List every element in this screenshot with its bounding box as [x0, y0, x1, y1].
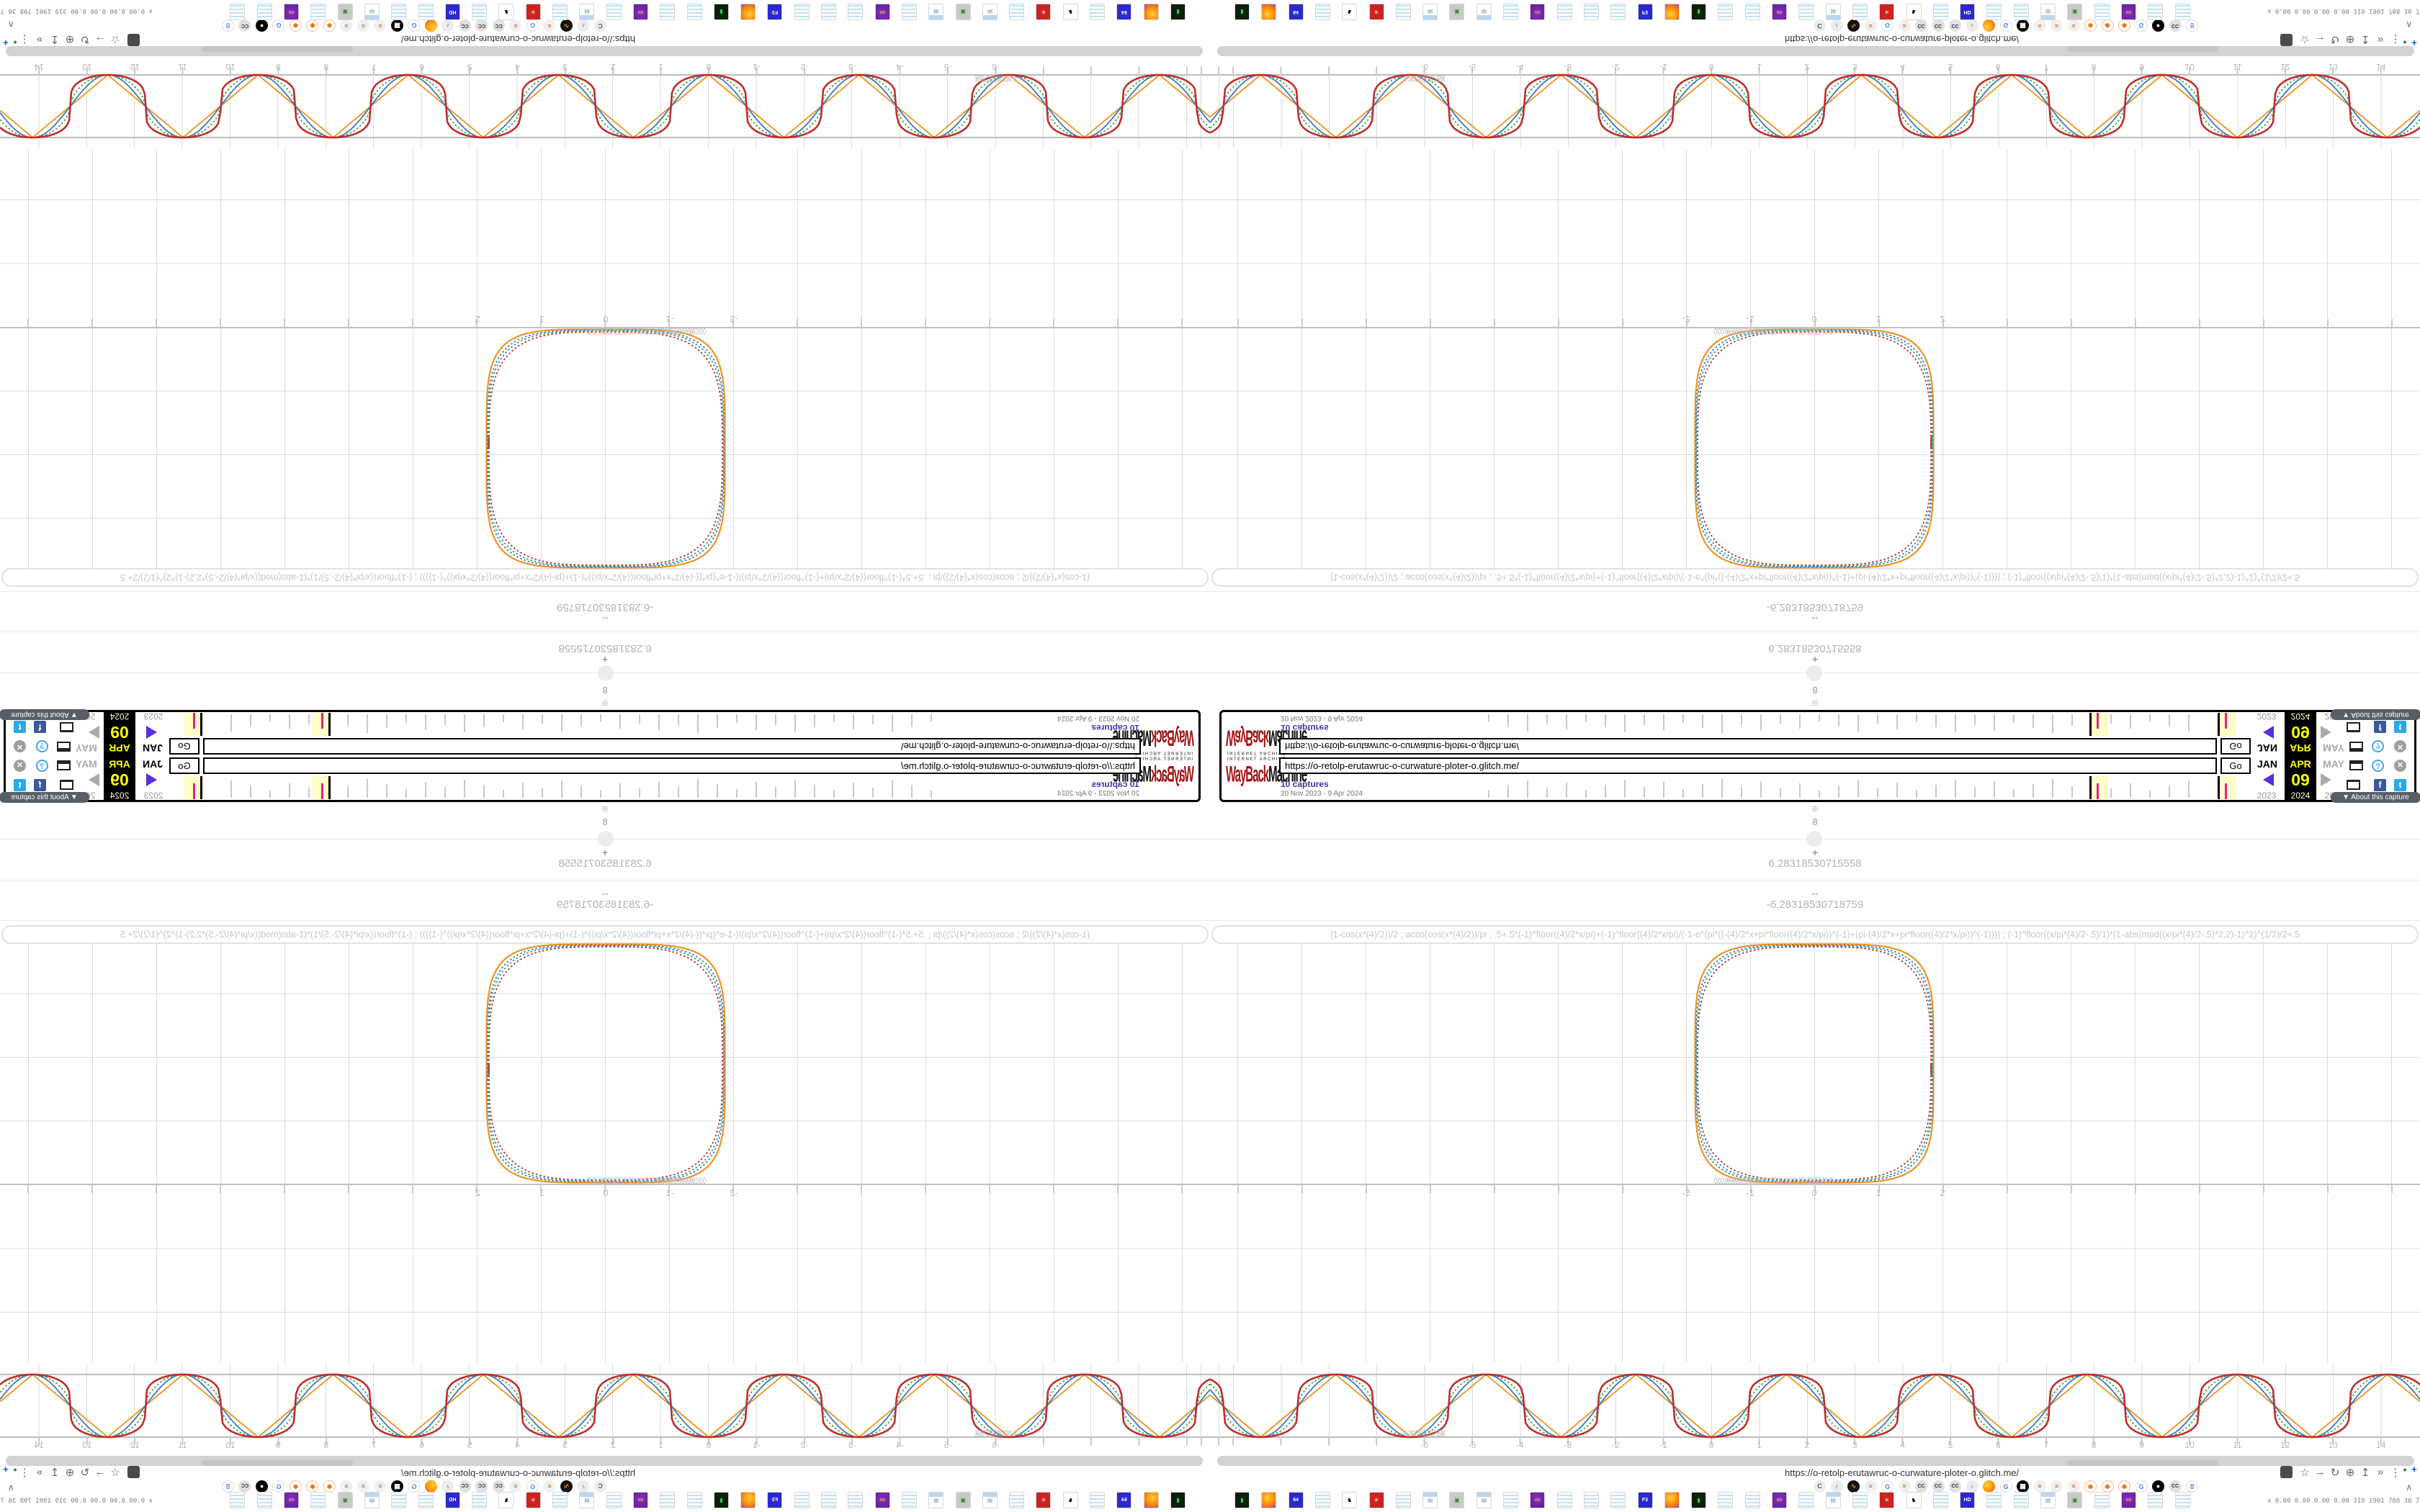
- capture-tick[interactable]: [581, 786, 582, 798]
- desktop-firefox-icon[interactable]: [1261, 4, 1276, 20]
- twitter-icon[interactable]: t: [14, 721, 26, 733]
- extension-asterisk-icon[interactable]: ✱: [290, 1480, 302, 1493]
- capture-tick[interactable]: [736, 789, 738, 798]
- capture-tick[interactable]: [2033, 784, 2034, 798]
- address-bar-url[interactable]: https://o-retolp-erutawruc-o-curwature-p…: [401, 1467, 635, 1478]
- close-icon[interactable]: ✕: [14, 740, 26, 752]
- capture-tick[interactable]: [483, 714, 485, 727]
- desktop-owl-icon[interactable]: oo: [2121, 4, 2136, 20]
- prev-capture-arrow-icon[interactable]: [146, 773, 157, 786]
- desktop-note-icon[interactable]: [1009, 1492, 1024, 1508]
- extension-cc-icon[interactable]: CC: [1932, 19, 1945, 32]
- capture-tick[interactable]: [853, 714, 854, 729]
- desktop-atom-icon[interactable]: ✳: [1036, 4, 1052, 20]
- capture-tick[interactable]: [1546, 788, 1548, 798]
- capture-tick[interactable]: [639, 788, 640, 798]
- desktop-note-icon[interactable]: [2094, 4, 2110, 20]
- wave-plot[interactable]: [0, 1369, 1210, 1441]
- desktop-monitor-icon[interactable]: ▣: [2067, 4, 2082, 20]
- status-dot-blue[interactable]: ✚: [0, 1466, 13, 1474]
- desktop-note-icon[interactable]: [902, 1492, 917, 1508]
- desktop-note-icon[interactable]: [552, 1492, 568, 1508]
- capture-tick[interactable]: [1721, 714, 1723, 733]
- desktop-calc-icon[interactable]: ▤: [1422, 1492, 1438, 1508]
- about-this-capture-button[interactable]: ▼ About this capture: [2331, 709, 2420, 720]
- collapse-caret-icon[interactable]: ∧: [2406, 19, 2413, 30]
- desktop-note-icon[interactable]: [472, 4, 487, 20]
- extension-cc-icon[interactable]: CC: [459, 1480, 471, 1493]
- prev-month-label[interactable]: JAN: [137, 742, 169, 754]
- desktop-note-icon[interactable]: [1933, 4, 1948, 20]
- desktop-firefox-icon[interactable]: [740, 4, 756, 20]
- capture-tick[interactable]: [444, 787, 446, 798]
- capture-tick[interactable]: [1507, 786, 1509, 798]
- desktop-note-icon[interactable]: [310, 1492, 326, 1508]
- next-capture-arrow-icon[interactable]: [2321, 726, 2331, 739]
- extension-asterisk-icon[interactable]: ✱: [2118, 1480, 2130, 1493]
- desktop-owl-icon[interactable]: oo: [2121, 1492, 2136, 1508]
- extension-google-icon[interactable]: G: [1881, 19, 1894, 32]
- desktop-calc-icon[interactable]: ▤: [2040, 4, 2056, 20]
- capture-tick[interactable]: [289, 714, 290, 729]
- desktop-atom-icon[interactable]: ✳: [526, 4, 541, 20]
- desktop-floppy-icon[interactable]: 64: [1289, 4, 1304, 20]
- desktop-cat-icon[interactable]: ♞: [1063, 1492, 1078, 1508]
- reload-icon[interactable]: ↻: [78, 1466, 92, 1479]
- desktop-note-icon[interactable]: [1745, 1492, 1760, 1508]
- desktop-calc-icon[interactable]: ▤: [2040, 1492, 2056, 1508]
- capture-tick[interactable]: [1780, 788, 1781, 798]
- help-icon[interactable]: ?: [2372, 760, 2384, 772]
- capture-sparkline[interactable]: [200, 776, 932, 799]
- extension-asterisk-icon[interactable]: ✱: [290, 19, 302, 32]
- desktop-cat-icon[interactable]: ♞: [1342, 4, 1357, 20]
- desktop-terminal-icon[interactable]: ▮: [714, 1492, 729, 1508]
- desktop-floppy-icon[interactable]: 64: [1116, 1492, 1131, 1508]
- desktop-monitor-icon[interactable]: ▣: [1449, 4, 1464, 20]
- capture-tick[interactable]: [1682, 714, 1684, 723]
- capture-tick[interactable]: [892, 780, 893, 798]
- desktop-cat-icon[interactable]: ♞: [1906, 1492, 1922, 1508]
- capture-marker[interactable]: [2097, 783, 2099, 799]
- capture-tick[interactable]: [1780, 714, 1781, 724]
- extension-cc-icon[interactable]: CC: [459, 19, 471, 32]
- extension-dots-blue-icon[interactable]: ⠿: [2186, 1480, 2198, 1493]
- desktop-cat-icon[interactable]: ♞: [499, 1492, 514, 1508]
- capture-tick[interactable]: [386, 714, 387, 728]
- screenshot-icon[interactable]: [60, 780, 73, 790]
- status-dot-blue[interactable]: ✚: [0, 38, 13, 46]
- extension-stack-icon[interactable]: ≡: [1899, 19, 1911, 32]
- forward-arrow-icon[interactable]: →: [2313, 34, 2327, 46]
- extension-dots-blue-icon[interactable]: ⠿: [2186, 19, 2198, 32]
- desktop-atom-icon[interactable]: ✳: [1879, 1492, 1894, 1508]
- extension-copyright-icon[interactable]: C: [1814, 1480, 1826, 1493]
- extension-cat-black-icon[interactable]: ●: [2152, 1480, 2164, 1493]
- chevrons-icon[interactable]: »: [32, 34, 47, 46]
- desktop-note-icon[interactable]: [1718, 4, 1733, 20]
- capture-sparkline[interactable]: [200, 713, 932, 736]
- capture-tick[interactable]: [872, 714, 874, 724]
- stats-caret-icon[interactable]: ∧: [145, 7, 153, 14]
- desktop-note-icon[interactable]: [2014, 4, 2029, 20]
- wayback-url-input[interactable]: https://o-retolp-erutawruc-o-curwature-p…: [203, 757, 1141, 774]
- lobes-value[interactable]: 8: [0, 685, 1210, 696]
- desktop-note-icon[interactable]: [821, 4, 836, 20]
- prev-capture-arrow-icon[interactable]: [146, 726, 157, 739]
- extension-wave-black-icon[interactable]: ∿: [560, 19, 573, 32]
- desktop-atom-icon[interactable]: ✳: [1369, 1492, 1384, 1508]
- desktop-terminal-icon[interactable]: ▮: [714, 4, 729, 20]
- bookmark-star-icon[interactable]: ☆: [2298, 1466, 2312, 1479]
- move-icon[interactable]: +: [0, 654, 1210, 665]
- extension-asterisk-icon[interactable]: ✱: [2102, 19, 2114, 32]
- extension-google-icon[interactable]: G: [1881, 1480, 1894, 1493]
- extension-stack-icon[interactable]: ≡: [2034, 1480, 2046, 1493]
- extension-cat-black-icon[interactable]: ●: [2152, 19, 2164, 32]
- capture-tick[interactable]: [756, 714, 757, 730]
- capture-tick[interactable]: [1819, 714, 1820, 721]
- capture-tick[interactable]: [1546, 714, 1548, 724]
- capture-tick[interactable]: [1488, 714, 1489, 721]
- desktop-note-icon[interactable]: [257, 4, 272, 20]
- capture-tick[interactable]: [1741, 714, 1742, 726]
- capture-tick[interactable]: [2071, 786, 2073, 798]
- desktop-note-icon[interactable]: [310, 4, 326, 20]
- extension-stack-icon[interactable]: ≡: [341, 1480, 353, 1493]
- desktop-calc-icon[interactable]: ▤: [579, 4, 594, 20]
- desktop-note-icon[interactable]: [1503, 1492, 1518, 1508]
- capture-tick[interactable]: [542, 714, 543, 724]
- capture-tick[interactable]: [1877, 714, 1878, 724]
- extension-dots-blue-icon[interactable]: ⠿: [222, 19, 234, 32]
- desktop-note-icon[interactable]: [1610, 4, 1626, 20]
- capture-tick[interactable]: [289, 783, 290, 798]
- desktop-atom-icon[interactable]: ✳: [1369, 4, 1384, 20]
- prev-capture-arrow-icon[interactable]: [2263, 726, 2274, 739]
- capture-tick[interactable]: [1624, 780, 1626, 798]
- desktop-owl-icon[interactable]: oo: [1530, 1492, 1545, 1508]
- desktop-note-icon[interactable]: [2175, 4, 2190, 20]
- extension-cat-black-icon[interactable]: ●: [256, 19, 268, 32]
- capture-tick[interactable]: [386, 784, 387, 798]
- capture-tick[interactable]: [2110, 788, 2112, 798]
- desktop-note-icon[interactable]: [1396, 4, 1411, 20]
- capture-tick[interactable]: [2149, 791, 2151, 798]
- extension-stack-icon[interactable]: ≡: [1865, 1480, 1877, 1493]
- desktop-cat-icon[interactable]: ♞: [1063, 4, 1078, 20]
- desktop-note-icon[interactable]: [606, 4, 622, 20]
- capture-tick[interactable]: [833, 790, 835, 798]
- capture-tick[interactable]: [1663, 782, 1664, 798]
- desktop-owl-icon[interactable]: oo: [284, 1492, 299, 1508]
- capture-tick[interactable]: [464, 780, 465, 798]
- h-resize-icon[interactable]: ↔: [0, 887, 1210, 898]
- capture-tick[interactable]: [1974, 714, 1976, 725]
- close-icon[interactable]: ✕: [2394, 740, 2406, 752]
- rounded-square-plot[interactable]: [476, 930, 735, 1198]
- capture-tick[interactable]: [1644, 714, 1645, 725]
- wayback-url-input[interactable]: https://o-retolp-erutawruc-o-curwature-p…: [1279, 757, 2217, 774]
- capture-tick[interactable]: [892, 714, 893, 732]
- desktop-note-icon[interactable]: [1798, 1492, 1814, 1508]
- forward-arrow-icon[interactable]: →: [93, 34, 107, 46]
- extension-google-icon[interactable]: G: [2000, 1480, 2012, 1493]
- capture-tick[interactable]: [658, 781, 660, 798]
- capture-tick[interactable]: [736, 714, 738, 723]
- extension-asterisk-icon[interactable]: ✱: [307, 19, 319, 32]
- extension-copyright-icon[interactable]: C: [594, 19, 606, 32]
- extension-stack-icon[interactable]: ≡: [341, 19, 353, 32]
- capture-tick[interactable]: [775, 714, 776, 725]
- extension-copyright-icon[interactable]: C: [594, 1480, 606, 1493]
- desktop-firefox-icon[interactable]: [1664, 1492, 1680, 1508]
- desktop-calc-icon[interactable]: ▤: [928, 1492, 944, 1508]
- capture-tick[interactable]: [1916, 790, 1917, 798]
- desktop-note-icon[interactable]: [1557, 4, 1572, 20]
- extension-asterisk-icon[interactable]: ✱: [323, 19, 336, 32]
- desktop-firefox-icon[interactable]: [1664, 4, 1680, 20]
- extension-google-icon[interactable]: G: [2136, 1480, 2148, 1493]
- capture-tick[interactable]: [1838, 714, 1839, 726]
- capture-marker[interactable]: [2225, 783, 2227, 799]
- capture-tick[interactable]: [1507, 714, 1509, 726]
- translate-icon[interactable]: [127, 1466, 140, 1478]
- extension-stack-icon[interactable]: ≡: [1899, 1480, 1911, 1493]
- desktop-owl-icon[interactable]: oo: [1772, 1492, 1787, 1508]
- rounded-square-plot[interactable]: [476, 314, 735, 582]
- capture-marker[interactable]: [321, 783, 323, 799]
- extension-stack-icon[interactable]: ≡: [1865, 19, 1877, 32]
- x-max-value[interactable]: 6.28318530715558: [1210, 858, 2420, 870]
- capture-tick[interactable]: [717, 784, 718, 798]
- capture-tick[interactable]: [308, 714, 310, 724]
- capture-tick[interactable]: [2188, 714, 2190, 732]
- wave-plot[interactable]: [1210, 1369, 2420, 1441]
- capture-tick[interactable]: [1877, 788, 1878, 798]
- capture-tick[interactable]: [619, 714, 621, 729]
- status-dot-blue[interactable]: ✚: [2407, 1466, 2420, 1474]
- extension-google-icon[interactable]: G: [2000, 19, 2012, 32]
- desktop-note-icon[interactable]: [418, 1492, 434, 1508]
- forward-arrow-icon[interactable]: →: [2313, 1466, 2327, 1478]
- desktop-monitor-icon[interactable]: ▣: [956, 4, 971, 20]
- stats-caret-icon[interactable]: ∧: [2267, 1498, 2275, 1505]
- capture-tick[interactable]: [1935, 785, 1937, 798]
- capture-tick[interactable]: [464, 714, 465, 732]
- capture-tick[interactable]: [1935, 714, 1937, 727]
- extension-speaker-icon[interactable]: ♪: [1831, 1480, 1843, 1493]
- move-icon[interactable]: +: [1210, 847, 2420, 858]
- capture-tick[interactable]: [697, 714, 699, 733]
- captures-link[interactable]: 10 captures: [1281, 779, 1329, 789]
- capture-marker[interactable]: [2097, 713, 2099, 729]
- extension-speaker-icon[interactable]: ♪: [1966, 1480, 1978, 1493]
- capture-tick[interactable]: [2169, 714, 2170, 726]
- collapse-caret-icon[interactable]: ∧: [7, 1482, 14, 1493]
- extension-firefox-icon[interactable]: [425, 1480, 437, 1493]
- desktop-note-icon[interactable]: [1986, 4, 2002, 20]
- capture-tick[interactable]: [619, 783, 621, 798]
- extension-copyright-icon[interactable]: C: [1814, 19, 1826, 32]
- capture-tick[interactable]: [1663, 714, 1664, 730]
- desktop-note-icon[interactable]: [848, 4, 863, 20]
- desktop-note-icon[interactable]: [1933, 1492, 1948, 1508]
- desktop-cat-icon[interactable]: ♞: [1906, 4, 1922, 20]
- extension-speaker-icon[interactable]: ♪: [578, 19, 590, 32]
- twitter-icon[interactable]: t: [2394, 721, 2406, 733]
- capture-tick[interactable]: [814, 714, 815, 727]
- desktop-note-icon[interactable]: [660, 1492, 675, 1508]
- desktop-note-icon[interactable]: [1315, 4, 1330, 20]
- extension-cc-icon[interactable]: CC: [493, 1480, 505, 1493]
- gear-icon[interactable]: ◎: [0, 699, 1210, 707]
- help-icon[interactable]: ?: [36, 760, 48, 772]
- capture-tick[interactable]: [1994, 782, 1995, 798]
- capture-tick[interactable]: [308, 788, 310, 798]
- desktop-calc-icon[interactable]: ▤: [982, 1492, 998, 1508]
- capture-tick[interactable]: [1916, 714, 1917, 722]
- capture-tick[interactable]: [522, 714, 524, 729]
- desktop-owl-icon[interactable]: oo: [633, 4, 648, 20]
- desktop-monitor-icon[interactable]: ▣: [956, 1492, 971, 1508]
- capture-tick[interactable]: [581, 714, 582, 726]
- capture-tick[interactable]: [425, 714, 426, 730]
- stats-caret-icon[interactable]: ∧: [145, 1498, 153, 1505]
- extension-google-icon[interactable]: G: [408, 19, 421, 32]
- capture-tick[interactable]: [269, 791, 271, 798]
- desktop-terminal-icon[interactable]: ▮: [1234, 1492, 1250, 1508]
- lobes-value[interactable]: 8: [1210, 685, 2420, 696]
- desktop-calc-icon[interactable]: ▤: [982, 4, 998, 20]
- desktop-note-icon[interactable]: [1090, 1492, 1105, 1508]
- desktop-note-icon[interactable]: [257, 1492, 272, 1508]
- capture-tick[interactable]: [503, 714, 504, 722]
- capture-tick[interactable]: [2110, 714, 2112, 724]
- desktop-monitor-icon[interactable]: ▣: [338, 1492, 353, 1508]
- window-frames-icon[interactable]: [2349, 760, 2363, 770]
- wayback-url-input[interactable]: https://o-retolp-erutawruc-o-curwature-p…: [203, 738, 1141, 755]
- desktop-note-icon[interactable]: [418, 4, 434, 20]
- extension-stack-icon[interactable]: ≡: [510, 1480, 522, 1493]
- chevrons-icon[interactable]: »: [2373, 1466, 2388, 1478]
- capture-tick[interactable]: [931, 714, 932, 721]
- extension-grid-black-icon[interactable]: ▦: [2017, 19, 2029, 32]
- capture-tick[interactable]: [814, 785, 815, 798]
- wayback-go-button[interactable]: Go: [169, 757, 200, 774]
- desktop-atom-icon[interactable]: ✳: [526, 1492, 541, 1508]
- capture-tick[interactable]: [1624, 714, 1626, 732]
- translate-icon[interactable]: [127, 34, 140, 46]
- drag-handle-circle[interactable]: [1806, 665, 1822, 681]
- share-icon[interactable]: ↥: [48, 1466, 62, 1479]
- capture-tick[interactable]: [1702, 784, 1703, 798]
- extension-google-icon[interactable]: G: [526, 19, 539, 32]
- capture-tick[interactable]: [678, 786, 679, 798]
- share-icon[interactable]: ↥: [2358, 33, 2372, 46]
- about-this-capture-button[interactable]: ▼ About this capture: [0, 709, 89, 720]
- wayback-go-button[interactable]: Go: [169, 738, 200, 755]
- x-min-value[interactable]: -6.28318530718759: [1210, 899, 2420, 911]
- move-icon[interactable]: +: [1210, 654, 2420, 665]
- about-this-capture-button[interactable]: ▼ About this capture: [2331, 792, 2420, 803]
- globe-icon[interactable]: ⊕: [63, 33, 77, 46]
- desktop-floppy-icon[interactable]: HD: [1960, 4, 1975, 20]
- capture-tick[interactable]: [1488, 791, 1489, 798]
- desktop-owl-icon[interactable]: oo: [875, 4, 890, 20]
- extension-google-icon[interactable]: G: [273, 1480, 285, 1493]
- desktop-calc-icon[interactable]: ▤: [1826, 1492, 1841, 1508]
- window-frames-icon[interactable]: [57, 760, 71, 770]
- desktop-floppy-icon[interactable]: F3: [1638, 1492, 1653, 1508]
- capture-marker[interactable]: [2225, 713, 2227, 729]
- prev-year-label[interactable]: 2023: [2250, 791, 2283, 801]
- collapse-caret-icon[interactable]: ∧: [7, 19, 14, 30]
- prev-month-label[interactable]: JAN: [2251, 742, 2283, 754]
- extension-stack-icon[interactable]: ≡: [2068, 19, 2080, 32]
- extension-firefox-icon[interactable]: [425, 19, 437, 32]
- rounded-square-plot[interactable]: [1685, 314, 1944, 582]
- desktop-cat-icon[interactable]: ♞: [1342, 1492, 1357, 1508]
- desktop-owl-icon[interactable]: oo: [633, 1492, 648, 1508]
- desktop-note-icon[interactable]: [1798, 4, 1814, 20]
- help-icon[interactable]: ?: [2372, 740, 2384, 752]
- capture-tick[interactable]: [600, 791, 601, 798]
- screenshot-icon[interactable]: [2347, 722, 2360, 732]
- wayback-url-input[interactable]: https://o-retolp-erutawruc-o-curwature-p…: [1279, 738, 2217, 755]
- drag-handle-circle[interactable]: [598, 665, 614, 681]
- prev-month-label[interactable]: JAN: [137, 758, 169, 770]
- desktop-terminal-icon[interactable]: ▮: [1691, 1492, 1706, 1508]
- capture-tick[interactable]: [1527, 714, 1528, 732]
- h-resize-icon[interactable]: ↔: [1210, 614, 2420, 625]
- extension-cc-icon[interactable]: CC: [239, 19, 251, 32]
- capture-tick[interactable]: [1974, 787, 1976, 798]
- capture-tick[interactable]: [250, 714, 251, 726]
- desktop-note-icon[interactable]: [1503, 4, 1518, 20]
- window-frames-icon[interactable]: [2349, 742, 2363, 752]
- captures-link[interactable]: 10 captures: [1091, 779, 1139, 789]
- facebook-icon[interactable]: f: [34, 779, 46, 791]
- extension-wave-black-icon[interactable]: ∿: [1847, 19, 1860, 32]
- capture-tick[interactable]: [1605, 714, 1606, 727]
- capture-tick[interactable]: [347, 714, 349, 726]
- desktop-atom-icon[interactable]: ✳: [1036, 1492, 1052, 1508]
- desktop-note-icon[interactable]: [1745, 4, 1760, 20]
- window-frames-icon[interactable]: [57, 742, 71, 752]
- bookmark-star-icon[interactable]: ☆: [108, 1466, 122, 1479]
- extension-asterisk-icon[interactable]: ✱: [2118, 19, 2130, 32]
- capture-tick[interactable]: [678, 714, 679, 726]
- prev-capture-arrow-icon[interactable]: [2263, 773, 2274, 786]
- address-bar-url[interactable]: https://o-retolp-erutawruc-o-curwature-p…: [1785, 1467, 2019, 1478]
- capture-tick[interactable]: [833, 714, 835, 722]
- extension-cc-icon[interactable]: CC: [1949, 19, 1961, 32]
- desktop-cat-icon[interactable]: ♞: [499, 4, 514, 20]
- capture-tick[interactable]: [1994, 714, 1995, 730]
- prev-year-label[interactable]: 2023: [137, 791, 170, 801]
- desktop-note-icon[interactable]: [2175, 1492, 2190, 1508]
- extension-asterisk-icon[interactable]: ✱: [307, 1480, 319, 1493]
- capture-tick[interactable]: [230, 714, 232, 732]
- capture-tick[interactable]: [639, 714, 640, 724]
- extension-stack-icon[interactable]: ≡: [510, 19, 522, 32]
- capture-tick[interactable]: [2130, 783, 2131, 798]
- extension-stack-icon[interactable]: ≡: [2051, 1480, 2063, 1493]
- capture-tick[interactable]: [794, 780, 796, 798]
- capture-tick[interactable]: [658, 714, 660, 731]
- reload-icon[interactable]: ↻: [2328, 1466, 2342, 1479]
